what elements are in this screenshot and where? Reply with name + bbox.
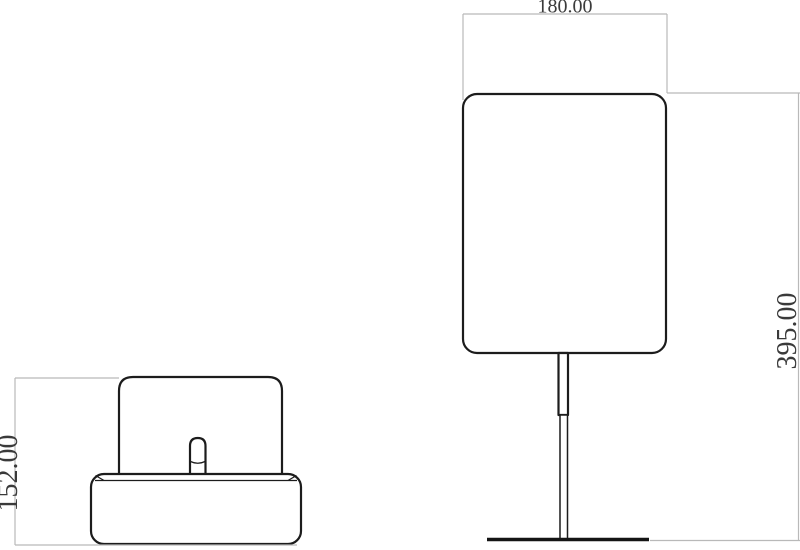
dimension-front-height: 395.00 <box>650 93 800 541</box>
dimension-side-height-value: 152.00 <box>0 435 24 512</box>
front-view-pole-outline <box>560 415 568 539</box>
side-view-base-outline <box>91 474 301 544</box>
front-view-screen-outline <box>463 94 666 353</box>
dimension-front-width-value: 180.00 <box>538 0 593 18</box>
dimension-front-width: 180.00 <box>463 0 667 100</box>
front-view <box>463 94 666 540</box>
front-view-neck-outline <box>559 353 569 415</box>
side-view-stem-outline <box>190 438 206 478</box>
technical-drawing: 152.00 180.00 395.00 <box>0 0 800 550</box>
drawing-canvas: 152.00 180.00 395.00 <box>0 0 800 550</box>
dimension-front-height-value: 395.00 <box>772 293 800 370</box>
side-view <box>91 377 301 544</box>
